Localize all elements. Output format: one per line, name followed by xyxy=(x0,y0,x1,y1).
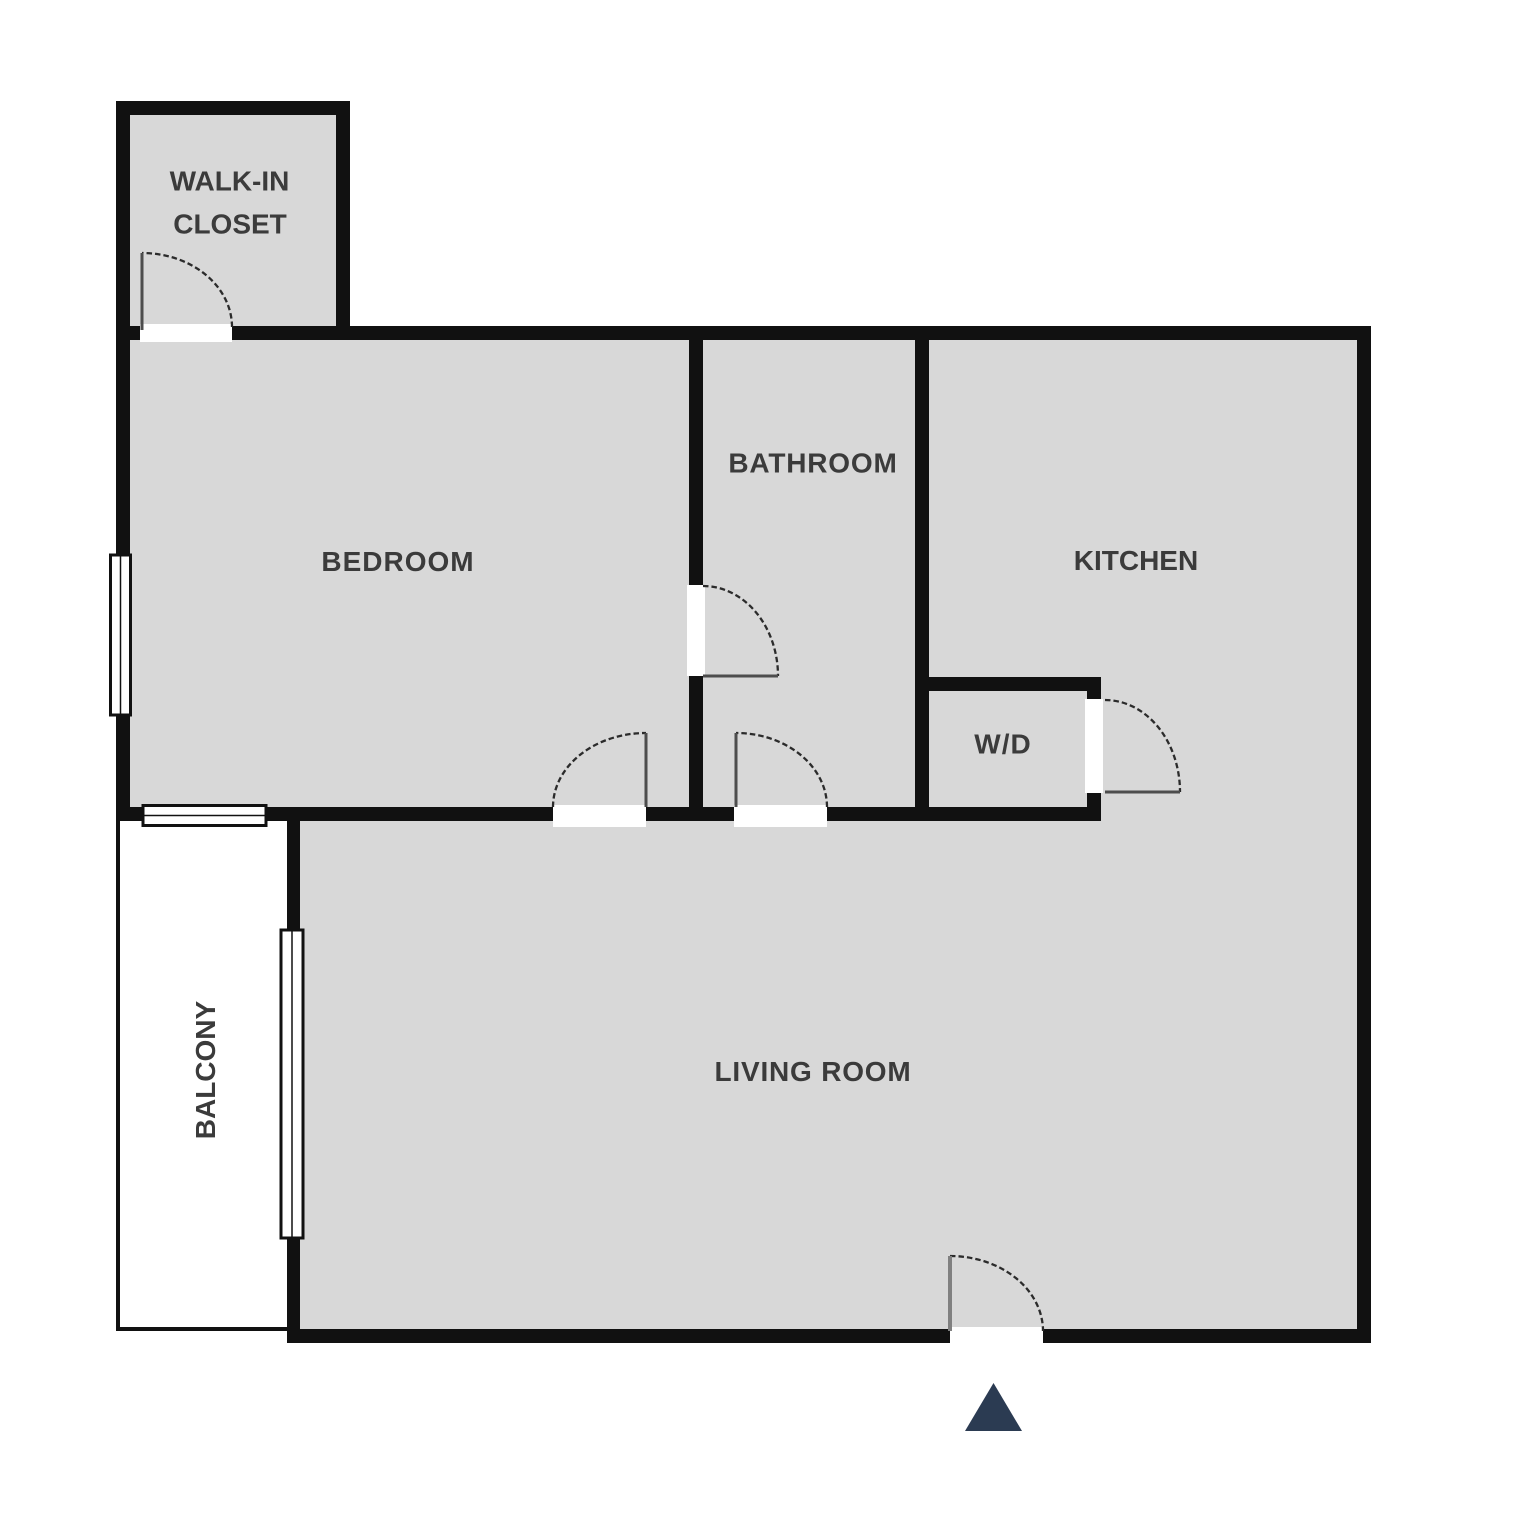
svg-text:KITCHEN: KITCHEN xyxy=(1074,545,1198,576)
svg-text:BATHROOM: BATHROOM xyxy=(728,448,897,479)
svg-text:BEDROOM: BEDROOM xyxy=(321,546,474,577)
svg-text:BALCONY: BALCONY xyxy=(190,1000,221,1139)
svg-text:CLOSET: CLOSET xyxy=(173,209,287,240)
svg-text:W/D: W/D xyxy=(974,729,1031,760)
svg-text:WALK-IN: WALK-IN xyxy=(170,166,290,197)
svg-text:LIVING ROOM: LIVING ROOM xyxy=(714,1056,911,1087)
